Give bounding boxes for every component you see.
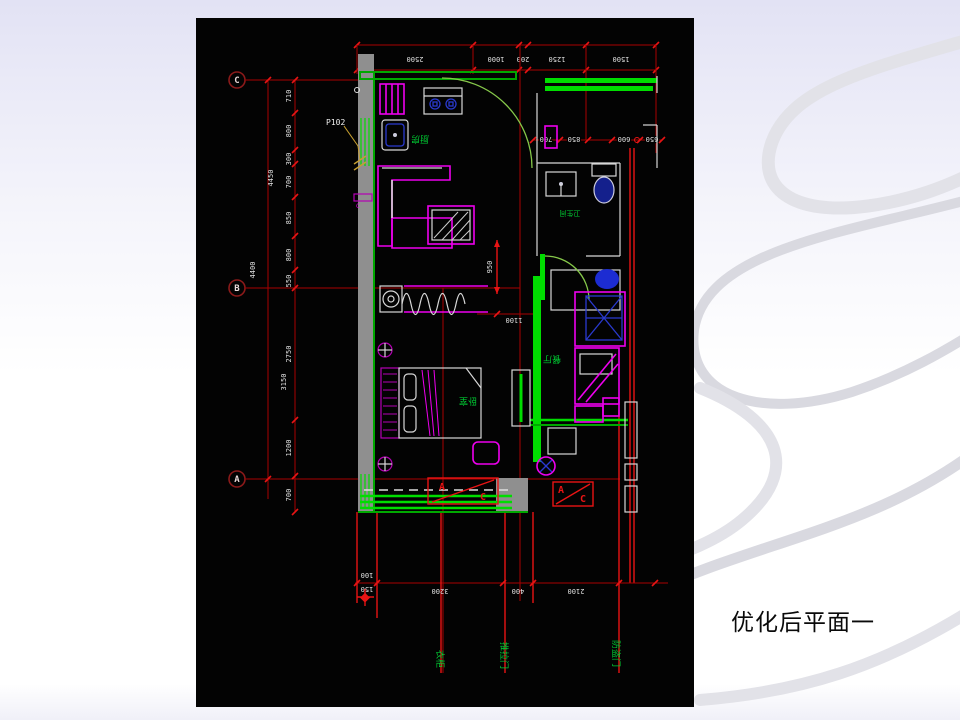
svg-text:950: 950 xyxy=(486,261,494,274)
dim-label: 150 xyxy=(361,585,374,593)
dim-label: 710 xyxy=(285,90,293,103)
room-label: 卫生间 xyxy=(560,209,581,218)
toilet xyxy=(592,164,616,203)
plant xyxy=(378,343,392,357)
bottom-label: 防盗门 xyxy=(610,640,622,667)
swirl-curve xyxy=(693,198,960,404)
dim-label: 700 xyxy=(540,135,553,143)
slide: 2500 1000 200 1250 1500 C B xyxy=(0,0,960,720)
dim-label: 4400 xyxy=(249,262,257,279)
door-leaf xyxy=(603,398,619,416)
top-wall xyxy=(360,72,516,79)
dim-label: 2100 xyxy=(568,587,585,595)
cad-floorplan-panel: 2500 1000 200 1250 1500 C B xyxy=(196,18,694,707)
bathroom-walls xyxy=(537,93,657,256)
svg-text:A: A xyxy=(439,482,445,493)
dimension-layer: 2500 1000 200 1250 1500 C B xyxy=(229,42,668,673)
sofa-cabinet xyxy=(378,166,452,248)
dim-label: 300 xyxy=(285,153,293,166)
swirl-curve xyxy=(768,38,960,208)
dim-label: 1250 xyxy=(549,55,566,63)
shoe-cabinet xyxy=(548,428,576,454)
furniture-layer: 卫生间 xyxy=(355,84,626,506)
dim-950: 950 xyxy=(486,240,500,294)
svg-text:C: C xyxy=(480,492,486,503)
kitchen-sink xyxy=(382,120,408,150)
bath-door xyxy=(540,254,589,300)
basin xyxy=(546,172,576,196)
dim-label: 200 xyxy=(517,55,530,63)
room-label: 餐厅 xyxy=(543,353,561,365)
left-dim-ticks xyxy=(265,77,298,515)
top-right-wall xyxy=(545,76,657,93)
svg-text:1100: 1100 xyxy=(506,316,523,324)
entry-door-arc xyxy=(442,78,532,168)
fridge-cabinet xyxy=(575,348,619,422)
table xyxy=(428,206,474,244)
dim-label: 3150 xyxy=(280,374,288,391)
dim-label: 800 xyxy=(285,125,293,138)
dim-label: 850 xyxy=(568,135,581,143)
entry-column xyxy=(625,402,637,512)
dim-label: 850 xyxy=(285,212,293,225)
dim-label: 100 xyxy=(361,571,374,579)
svg-text:C: C xyxy=(580,494,586,505)
dim-label: 700 xyxy=(285,489,293,502)
ac-box: A C xyxy=(553,482,593,506)
kitchen-cabinet xyxy=(380,84,404,114)
dim-label: 1000 xyxy=(488,55,505,63)
small-label: C xyxy=(356,203,360,210)
chair xyxy=(473,442,499,464)
dim-label: 1200 xyxy=(285,440,293,457)
grid-label: A xyxy=(234,475,240,485)
ac-box: A C xyxy=(428,478,498,504)
dim-label: 2500 xyxy=(407,55,424,63)
room-label: 厨房 xyxy=(411,133,429,145)
plant xyxy=(378,457,392,471)
dim-label: 1500 xyxy=(613,55,630,63)
dim-label: 550 xyxy=(285,275,293,288)
dim-1100: 1100 xyxy=(477,311,541,324)
washing-machine xyxy=(575,269,625,346)
cooktop xyxy=(424,88,462,114)
svg-text:P102: P102 xyxy=(326,118,345,127)
floor-drain xyxy=(537,457,555,475)
dim-label: 400 xyxy=(512,587,525,595)
bottom-label: 衣柜 xyxy=(434,650,446,668)
dim-label: 2750 xyxy=(285,346,293,363)
grid-label: B xyxy=(234,284,240,294)
grid-label: C xyxy=(234,76,239,86)
dim-label: 600 xyxy=(618,135,631,143)
dim-label: 700 xyxy=(285,176,293,189)
dim-label: 3200 xyxy=(432,587,449,595)
dim-label: 4450 xyxy=(267,170,275,187)
bedroom-window xyxy=(512,370,530,426)
dim-label: 800 xyxy=(285,249,293,262)
svg-text:A: A xyxy=(558,485,564,496)
floorplan-drawing: 2500 1000 200 1250 1500 C B xyxy=(196,18,694,707)
slide-caption: 优化后平面一 xyxy=(731,603,931,637)
bottom-label: 推拉门 xyxy=(498,642,510,669)
wing-wall xyxy=(533,276,541,462)
room-label: 卧室 xyxy=(459,395,477,407)
radiator xyxy=(380,286,488,315)
